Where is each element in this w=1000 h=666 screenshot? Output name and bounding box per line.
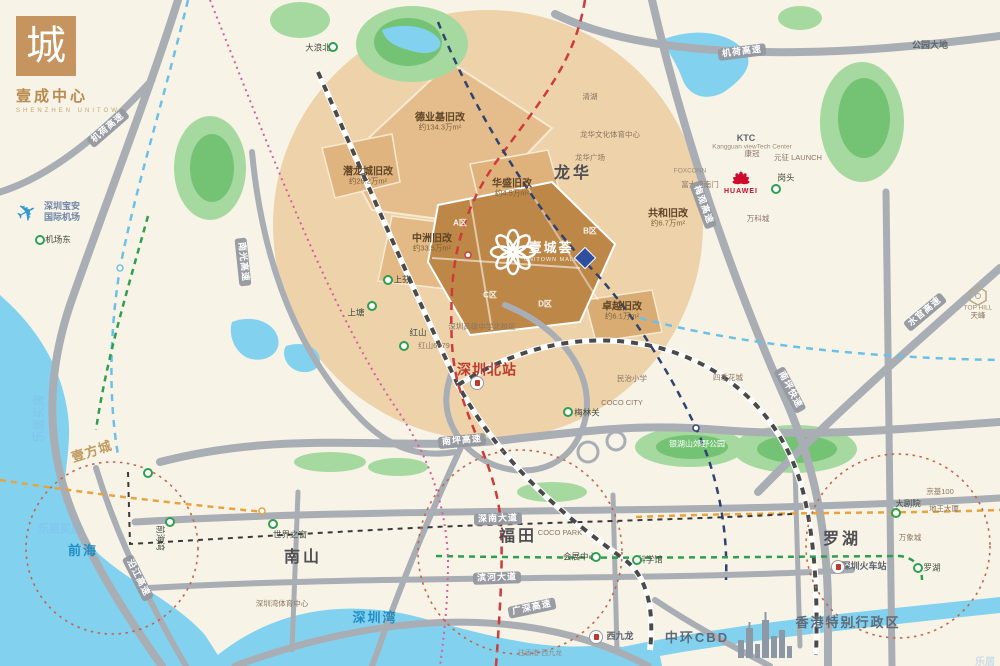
metro-station-icon <box>35 235 45 245</box>
metro-station-icon <box>165 517 175 527</box>
brand-logo: 城 壹成中心 SHENZHEN UNITOWN <box>16 16 136 114</box>
metro-station-icon <box>632 555 642 565</box>
brand-title: 壹成中心 <box>16 85 136 106</box>
brand-mark: 城 <box>16 16 76 76</box>
map-graphics <box>0 0 1000 666</box>
metro-station-icon <box>891 508 901 518</box>
metro-station-icon <box>771 184 781 194</box>
metro-station-icon <box>563 407 573 417</box>
metro-station-icon <box>143 468 153 478</box>
metro-station-icon <box>367 301 377 311</box>
map-canvas[interactable]: 城 壹成中心 SHENZHEN UNITOWN ✈ 壹城荟 UNITOWN MA… <box>0 0 1000 666</box>
metro-station-icon <box>399 341 409 351</box>
metro-station-icon <box>591 552 601 562</box>
metro-station-icon <box>328 42 338 52</box>
skyline-icon <box>738 612 792 658</box>
rail-station-icon <box>831 560 845 574</box>
metro-station-icon <box>383 275 393 285</box>
huawei-icon <box>732 172 750 185</box>
brand-subtitle: SHENZHEN UNITOWN <box>16 108 136 114</box>
rail-station-icon <box>589 630 603 644</box>
rail-station-icon <box>470 376 484 390</box>
metro-station-icon <box>268 519 278 529</box>
metro-station-icon <box>913 563 923 573</box>
